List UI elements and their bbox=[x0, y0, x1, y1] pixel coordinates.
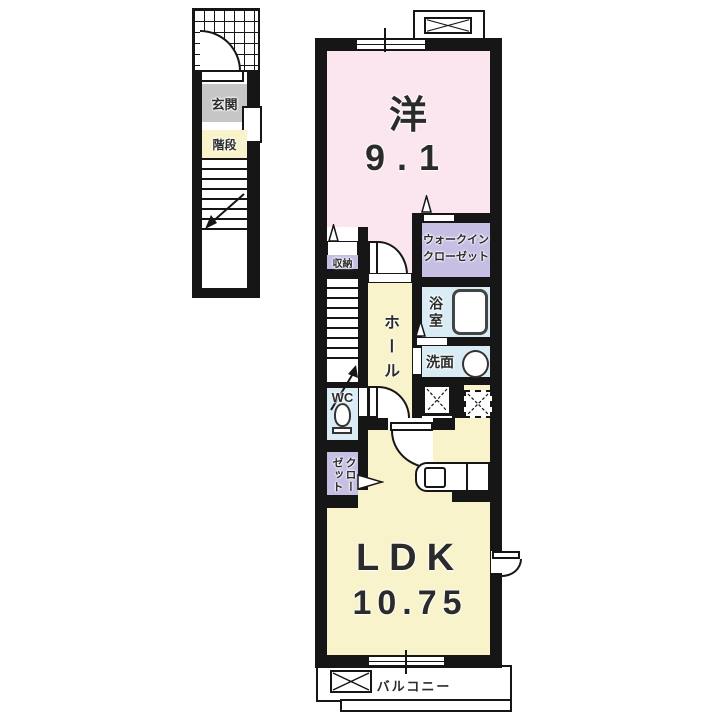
kitchen-divider bbox=[466, 463, 468, 491]
wall-tick bbox=[256, 82, 258, 91]
wall bbox=[327, 269, 358, 277]
balcony-label: バルコニー bbox=[370, 675, 458, 695]
kaidan-label: 階段 bbox=[202, 130, 247, 158]
top-window-icon bbox=[356, 39, 426, 50]
stairs-arrow-icon bbox=[202, 190, 247, 234]
balcony-ac-x-box-icon bbox=[330, 670, 372, 693]
wall-right bbox=[490, 38, 502, 668]
bath-sliding-door bbox=[416, 337, 448, 346]
kitchen-sink-icon bbox=[424, 467, 446, 488]
wc-label: WC bbox=[327, 390, 358, 405]
toilet-base bbox=[332, 427, 352, 434]
bathtub-icon bbox=[452, 289, 488, 335]
hall-label: ホール bbox=[379, 295, 401, 405]
western-door-leaf bbox=[368, 241, 378, 275]
entry-door-leaf bbox=[198, 70, 244, 82]
wc-door-opening bbox=[359, 388, 367, 416]
ldk-door-leaf bbox=[390, 422, 433, 431]
storage-label: 収納 bbox=[327, 255, 358, 269]
stairs-treads-main bbox=[327, 277, 358, 367]
bath-label: 浴室 bbox=[424, 292, 446, 334]
wall bbox=[452, 377, 464, 418]
wall bbox=[192, 70, 202, 298]
wc-door-leaf bbox=[368, 386, 378, 418]
fridge-space-x-box-icon bbox=[464, 390, 492, 418]
wall bbox=[412, 277, 490, 287]
hall-threshold bbox=[368, 273, 412, 283]
wall-left bbox=[315, 38, 327, 668]
floor-plan: 玄関 階段 収納 bbox=[0, 0, 720, 720]
toilet-icon bbox=[334, 403, 351, 427]
ldk-label: LDK bbox=[330, 536, 490, 580]
exterior-door-arc-icon bbox=[502, 559, 522, 577]
wall bbox=[327, 495, 358, 508]
vent-triangle-icon bbox=[421, 195, 432, 213]
western-room-label: 洋 bbox=[348, 88, 468, 134]
balcony-step bbox=[340, 699, 512, 712]
closet-folding-door-icon bbox=[357, 474, 384, 490]
western-room-size: 9.1 bbox=[338, 136, 478, 180]
washroom-label: 洗面 bbox=[418, 351, 462, 373]
ac-pad-x-box-icon bbox=[424, 17, 472, 34]
genkan-label: 玄関 bbox=[202, 84, 247, 122]
washer-space-x-box-icon bbox=[422, 384, 452, 416]
window-tick bbox=[384, 28, 386, 52]
wall bbox=[327, 440, 358, 452]
sink-oval-icon bbox=[462, 350, 489, 378]
closet-label: クローゼット bbox=[330, 455, 356, 495]
wic-label-line2: クローゼット bbox=[422, 248, 490, 264]
wall bbox=[192, 288, 260, 298]
wic-door-opening bbox=[424, 214, 454, 222]
wall bbox=[358, 227, 368, 490]
vent-triangle-icon bbox=[328, 224, 339, 242]
ldk-size: 10.75 bbox=[325, 582, 495, 624]
exterior-door-leaf bbox=[492, 551, 520, 559]
wic-label-line1: ウォークイン bbox=[422, 231, 490, 247]
wall bbox=[247, 70, 260, 298]
